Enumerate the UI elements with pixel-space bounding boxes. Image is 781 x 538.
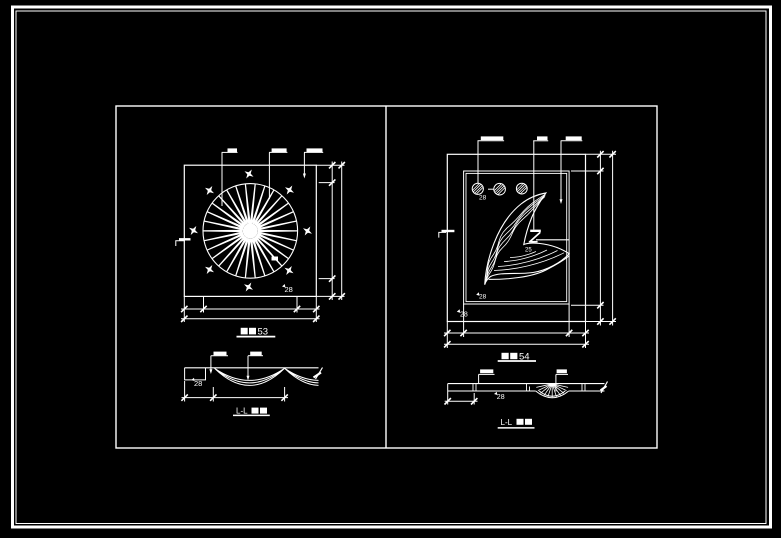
svg-text:28: 28 [479, 194, 487, 201]
svg-text:28: 28 [497, 394, 505, 401]
svg-text:28: 28 [460, 312, 468, 319]
svg-text:25: 25 [525, 248, 532, 254]
svg-text:L-L: L-L [236, 407, 248, 416]
svg-text:L-L: L-L [501, 418, 513, 427]
svg-text:28: 28 [285, 285, 293, 294]
svg-text:28: 28 [194, 379, 202, 388]
svg-text:28: 28 [479, 294, 487, 301]
